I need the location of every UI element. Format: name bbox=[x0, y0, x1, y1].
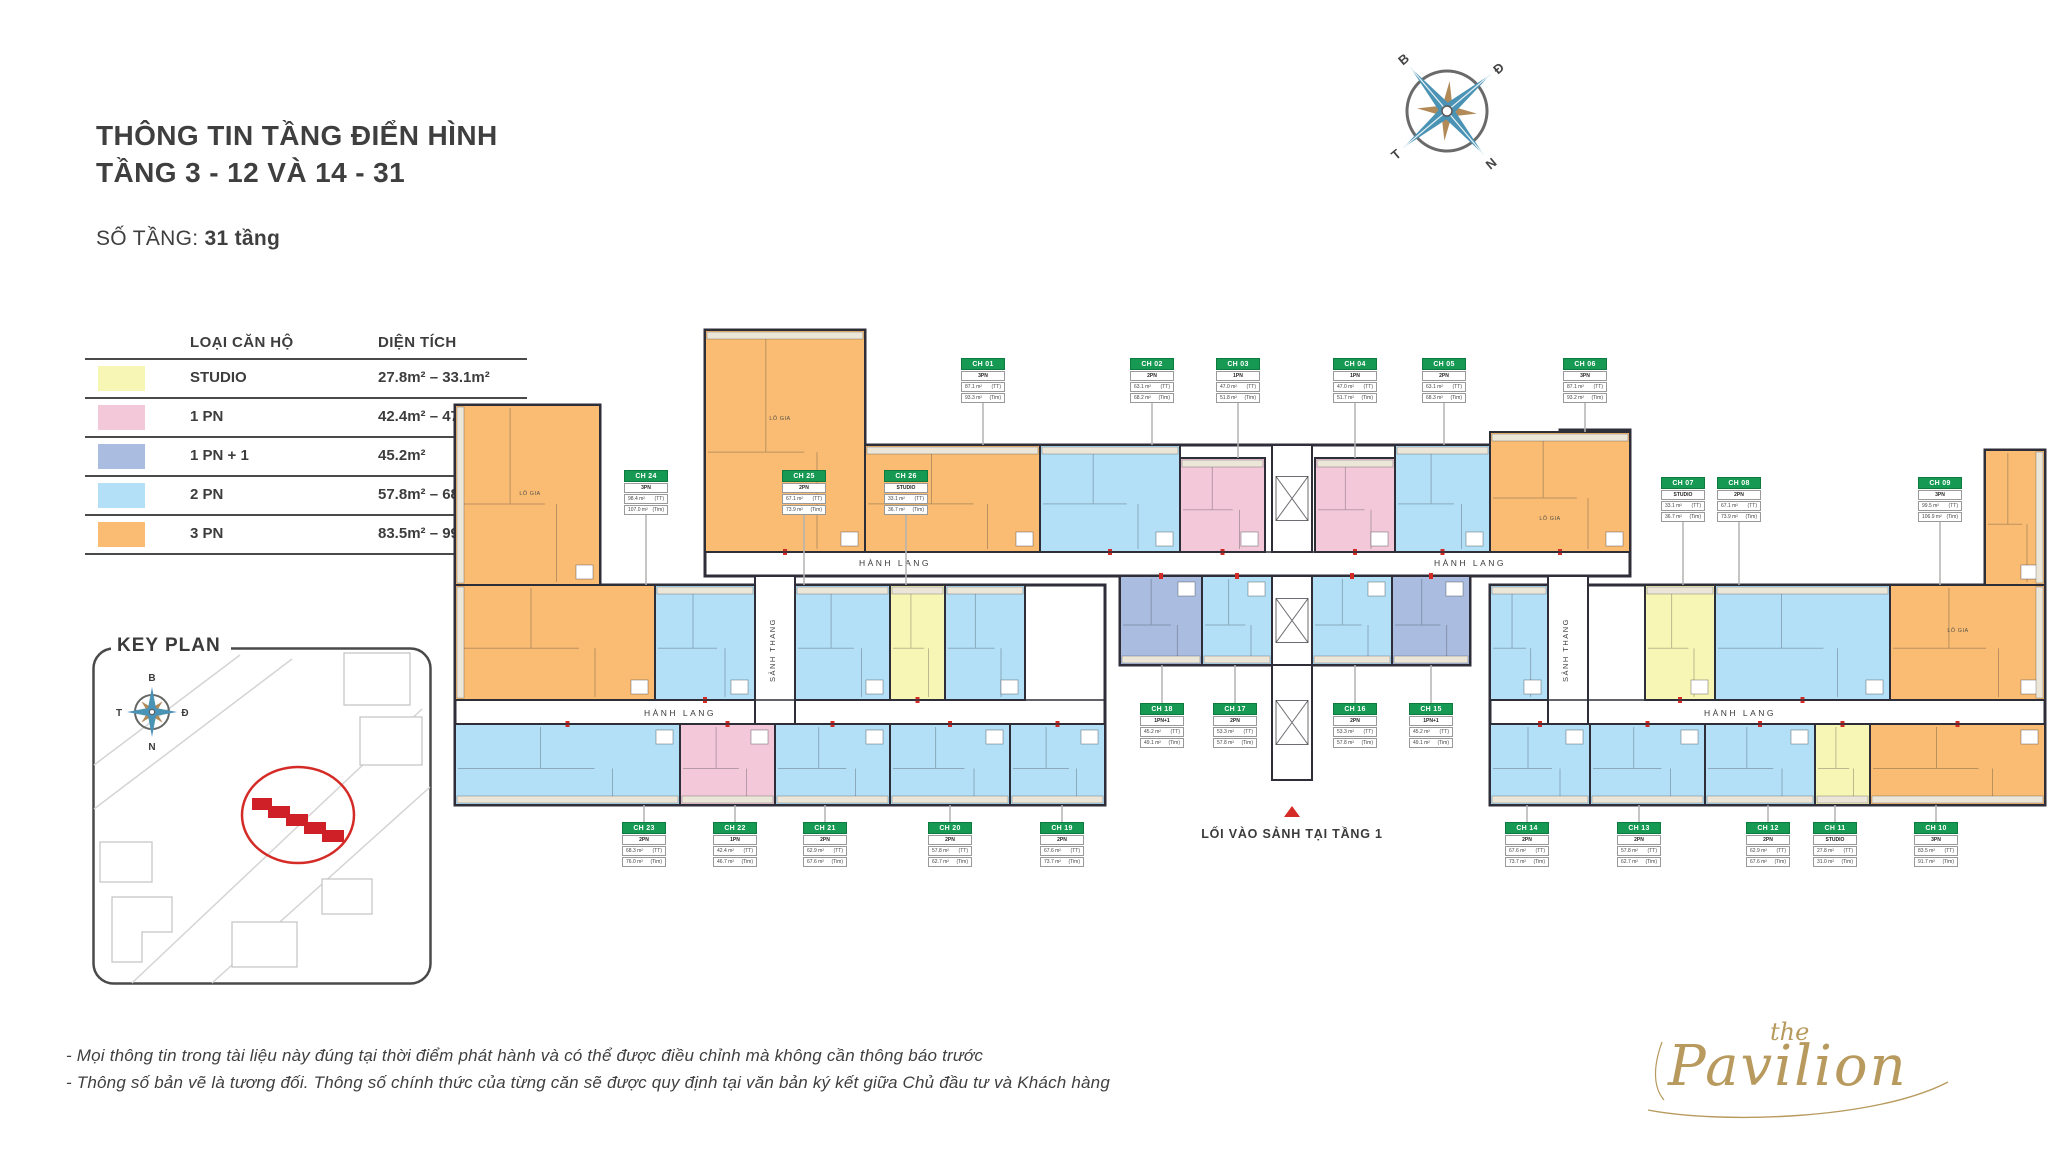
unit-id-label: CH 13 bbox=[1617, 822, 1661, 834]
plan-unit-ch-08 bbox=[1715, 585, 1890, 700]
unit-area-tt: 42.4 m²(TT) bbox=[713, 846, 757, 856]
unit-id-label: CH 10 bbox=[1914, 822, 1958, 834]
unit-area-tim: 67.6 m²(Tim) bbox=[803, 857, 847, 867]
unit-area-tim: 62.7 m²(Tim) bbox=[1617, 857, 1661, 867]
unit-card-ch-03: CH 031PN47.0 m²(TT)51.8 m²(Tim) bbox=[1216, 358, 1260, 403]
unit-type-label: 1PN bbox=[713, 835, 757, 845]
unit-card-ch-14: CH 142PN67.6 m²(TT)73.7 m²(Tim) bbox=[1505, 822, 1549, 867]
unit-area-tt: 67.1 m²(TT) bbox=[1717, 501, 1761, 511]
unit-area-tim: 62.7 m²(Tim) bbox=[928, 857, 972, 867]
unit-entry-mark bbox=[1159, 573, 1163, 579]
unit-area-tt: 83.5 m²(TT) bbox=[1914, 846, 1958, 856]
compass-e-label: Đ bbox=[1490, 60, 1507, 78]
unit-area-tim: 73.9 m²(Tim) bbox=[1717, 512, 1761, 522]
unit-entry-mark bbox=[1350, 573, 1354, 579]
unit-area-tim: 57.8 m²(Tim) bbox=[1333, 738, 1377, 748]
unit-card-ch-09: CH 093PN99.5 m²(TT)106.9 m²(Tim) bbox=[1918, 477, 1962, 522]
unit-area-tt: 45.2 m²(TT) bbox=[1140, 727, 1184, 737]
unit-area-tt: 57.8 m²(TT) bbox=[928, 846, 972, 856]
unit-area-tt: 62.9 m²(TT) bbox=[803, 846, 847, 856]
corridor-label: HÀNH LANG bbox=[1704, 708, 1776, 718]
unit-type-label: 3PN bbox=[624, 483, 668, 493]
unit-card-ch-01: CH 013PN87.1 m²(TT)93.3 m²(Tim) bbox=[961, 358, 1005, 403]
unit-card-ch-16: CH 162PN53.3 m²(TT)57.8 m²(Tim) bbox=[1333, 703, 1377, 748]
unit-id-label: CH 15 bbox=[1409, 703, 1453, 715]
unit-type-label: 2PN bbox=[1130, 371, 1174, 381]
unit-card-ch-05: CH 052PN63.1 m²(TT)68.3 m²(Tim) bbox=[1422, 358, 1466, 403]
unit-area-tim: 73.9 m²(Tim) bbox=[782, 505, 826, 515]
corridor-label: HÀNH LANG bbox=[859, 558, 931, 568]
unit-card-ch-13: CH 132PN57.8 m²(TT)62.7 m²(Tim) bbox=[1617, 822, 1661, 867]
unit-area-tim: 31.0 m²(Tim) bbox=[1813, 857, 1857, 867]
corridor-label: HÀNH LANG bbox=[1434, 558, 1506, 568]
unit-area-tim: 51.8 m²(Tim) bbox=[1216, 393, 1260, 403]
unit-id-label: CH 02 bbox=[1130, 358, 1174, 370]
unit-card-ch-20: CH 202PN57.8 m²(TT)62.7 m²(Tim) bbox=[928, 822, 972, 867]
unit-id-label: CH 16 bbox=[1333, 703, 1377, 715]
compass-rose-icon: B Đ N T bbox=[1372, 36, 1522, 186]
unit-card-ch-18: CH 181PN+145.2 m²(TT)49.1 m²(Tim) bbox=[1140, 703, 1184, 748]
unit-id-label: CH 23 bbox=[622, 822, 666, 834]
plan-unit-ch-11 bbox=[1815, 724, 1870, 805]
compass-w-label: T bbox=[1388, 146, 1404, 163]
unit-type-label: 2PN bbox=[1505, 835, 1549, 845]
keyplan-title: KEY PLAN bbox=[111, 635, 231, 657]
unit-area-tim: 46.7 m²(Tim) bbox=[713, 857, 757, 867]
unit-area-tt: 98.4 m²(TT) bbox=[624, 494, 668, 504]
unit-id-label: CH 12 bbox=[1746, 822, 1790, 834]
unit-card-ch-25: CH 252PN67.1 m²(TT)73.9 m²(Tim) bbox=[782, 470, 826, 515]
unit-area-tt: 33.1 m²(TT) bbox=[1661, 501, 1705, 511]
unit-type-label: 2PN bbox=[622, 835, 666, 845]
unit-card-ch-02: CH 022PN63.1 m²(TT)68.2 m²(Tim) bbox=[1130, 358, 1174, 403]
compass-s-label: N bbox=[1483, 155, 1500, 173]
entry-arrow-icon bbox=[1284, 806, 1300, 817]
keyplan-compass-n: B bbox=[148, 673, 155, 684]
unit-id-label: CH 17 bbox=[1213, 703, 1257, 715]
unit-card-ch-07: CH 07STUDIO33.1 m²(TT)36.7 m²(Tim) bbox=[1661, 477, 1705, 522]
unit-id-label: CH 25 bbox=[782, 470, 826, 482]
unit-type-label: 2PN bbox=[1617, 835, 1661, 845]
unit-type-label: STUDIO bbox=[1661, 490, 1705, 500]
balcony-label: LÔ GIA bbox=[1539, 515, 1560, 522]
unit-type-label: 3PN bbox=[1918, 490, 1962, 500]
unit-area-tim: 51.7 m²(Tim) bbox=[1333, 393, 1377, 403]
unit-area-tim: 36.7 m²(Tim) bbox=[884, 505, 928, 515]
unit-id-label: CH 09 bbox=[1918, 477, 1962, 489]
unit-id-label: CH 01 bbox=[961, 358, 1005, 370]
unit-area-tim: 106.9 m²(Tim) bbox=[1918, 512, 1962, 522]
unit-area-tt: 87.1 m²(TT) bbox=[1563, 382, 1607, 392]
unit-type-label: 3PN bbox=[1563, 371, 1607, 381]
unit-area-tim: 91.7 m²(Tim) bbox=[1914, 857, 1958, 867]
unit-id-label: CH 19 bbox=[1040, 822, 1084, 834]
unit-area-tt: 62.9 m²(TT) bbox=[1746, 846, 1790, 856]
unit-area-tim: 73.7 m²(Tim) bbox=[1040, 857, 1084, 867]
unit-id-label: CH 04 bbox=[1333, 358, 1377, 370]
unit-area-tt: 45.2 m²(TT) bbox=[1409, 727, 1453, 737]
unit-type-label: 2PN bbox=[1213, 716, 1257, 726]
keyplan-compass-e: Đ bbox=[181, 708, 188, 719]
unit-area-tt: 47.0 m²(TT) bbox=[1333, 382, 1377, 392]
balcony-label: LÔ GIA bbox=[519, 490, 540, 497]
unit-area-tim: 107.0 m²(Tim) bbox=[624, 505, 668, 515]
unit-card-ch-15: CH 151PN+145.2 m²(TT)49.1 m²(Tim) bbox=[1409, 703, 1453, 748]
balcony-label: LÔ GIA bbox=[1947, 627, 1968, 634]
unit-area-tt: 87.1 m²(TT) bbox=[961, 382, 1005, 392]
keyplan-compass-s: N bbox=[148, 742, 155, 753]
unit-entry-mark bbox=[1235, 573, 1239, 579]
unit-id-label: CH 11 bbox=[1813, 822, 1857, 834]
unit-id-label: CH 06 bbox=[1563, 358, 1607, 370]
stair-label: SẢNH THANG bbox=[1561, 618, 1570, 682]
unit-type-label: 2PN bbox=[1422, 371, 1466, 381]
plan-unit-ch-01 bbox=[705, 330, 865, 552]
unit-area-tt: 67.1 m²(TT) bbox=[782, 494, 826, 504]
unit-area-tim: 76.0 m²(Tim) bbox=[622, 857, 666, 867]
unit-area-tim: 49.1 m²(Tim) bbox=[1409, 738, 1453, 748]
unit-type-label: 2PN bbox=[1717, 490, 1761, 500]
unit-area-tt: 63.1 m²(TT) bbox=[1130, 382, 1174, 392]
unit-area-tim: 57.8 m²(Tim) bbox=[1213, 738, 1257, 748]
unit-type-label: 1PN+1 bbox=[1140, 716, 1184, 726]
plan-unit-ch-10 bbox=[1870, 724, 2045, 805]
unit-area-tt: 67.6 m²(TT) bbox=[1040, 846, 1084, 856]
unit-area-tt: 63.1 m²(TT) bbox=[1422, 382, 1466, 392]
unit-entry-mark bbox=[1429, 573, 1433, 579]
unit-type-label: 2PN bbox=[782, 483, 826, 493]
unit-card-ch-23: CH 232PN68.3 m²(TT)76.0 m²(Tim) bbox=[622, 822, 666, 867]
unit-type-label: 2PN bbox=[803, 835, 847, 845]
unit-area-tim: 93.2 m²(Tim) bbox=[1563, 393, 1607, 403]
unit-type-label: STUDIO bbox=[884, 483, 928, 493]
unit-card-ch-11: CH 11STUDIO27.8 m²(TT)31.0 m²(Tim) bbox=[1813, 822, 1857, 867]
unit-card-ch-04: CH 041PN47.0 m²(TT)51.7 m²(Tim) bbox=[1333, 358, 1377, 403]
corridor-label: HÀNH LANG bbox=[644, 708, 716, 718]
unit-card-ch-19: CH 192PN67.6 m²(TT)73.7 m²(Tim) bbox=[1040, 822, 1084, 867]
unit-type-label: 1PN bbox=[1216, 371, 1260, 381]
unit-type-label: 2PN bbox=[1333, 716, 1377, 726]
unit-card-ch-22: CH 221PN42.4 m²(TT)46.7 m²(Tim) bbox=[713, 822, 757, 867]
unit-card-ch-21: CH 212PN62.9 m²(TT)67.6 m²(Tim) bbox=[803, 822, 847, 867]
unit-id-label: CH 07 bbox=[1661, 477, 1705, 489]
unit-area-tim: 49.1 m²(Tim) bbox=[1140, 738, 1184, 748]
compass-n-label: B bbox=[1395, 51, 1412, 69]
unit-area-tim: 67.6 m²(Tim) bbox=[1746, 857, 1790, 867]
unit-area-tt: 68.3 m²(TT) bbox=[622, 846, 666, 856]
unit-type-label: 3PN bbox=[1914, 835, 1958, 845]
unit-id-label: CH 24 bbox=[624, 470, 668, 482]
unit-card-ch-26: CH 26STUDIO33.1 m²(TT)36.7 m²(Tim) bbox=[884, 470, 928, 515]
unit-area-tt: 99.5 m²(TT) bbox=[1918, 501, 1962, 511]
stair-label: SẢNH THANG bbox=[768, 618, 777, 682]
unit-id-label: CH 03 bbox=[1216, 358, 1260, 370]
unit-id-label: CH 26 bbox=[884, 470, 928, 482]
unit-card-ch-24: CH 243PN98.4 m²(TT)107.0 m²(Tim) bbox=[624, 470, 668, 515]
unit-id-label: CH 22 bbox=[713, 822, 757, 834]
unit-card-ch-06: CH 063PN87.1 m²(TT)93.2 m²(Tim) bbox=[1563, 358, 1607, 403]
unit-area-tt: 33.1 m²(TT) bbox=[884, 494, 928, 504]
unit-type-label: 2PN bbox=[928, 835, 972, 845]
keyplan-map: B Đ N T bbox=[92, 647, 432, 985]
unit-area-tim: 73.7 m²(Tim) bbox=[1505, 857, 1549, 867]
unit-area-tt: 57.8 m²(TT) bbox=[1617, 846, 1661, 856]
unit-type-label: STUDIO bbox=[1813, 835, 1857, 845]
unit-card-ch-08: CH 082PN67.1 m²(TT)73.9 m²(Tim) bbox=[1717, 477, 1761, 522]
unit-id-label: CH 14 bbox=[1505, 822, 1549, 834]
unit-area-tt: 53.3 m²(TT) bbox=[1333, 727, 1377, 737]
keyplan-compass-w: T bbox=[116, 708, 122, 719]
entry-label: LỐI VÀO SẢNH TẠI TẦNG 1 bbox=[1201, 826, 1383, 841]
unit-id-label: CH 08 bbox=[1717, 477, 1761, 489]
plan-unit-ch-23 bbox=[455, 724, 680, 805]
unit-area-tim: 93.3 m²(Tim) bbox=[961, 393, 1005, 403]
unit-id-label: CH 20 bbox=[928, 822, 972, 834]
unit-card-ch-10: CH 103PN83.5 m²(TT)91.7 m²(Tim) bbox=[1914, 822, 1958, 867]
unit-type-label: 3PN bbox=[961, 371, 1005, 381]
plan-unit-ch-24 bbox=[455, 585, 655, 700]
balcony-label: LÔ GIA bbox=[769, 415, 790, 422]
unit-card-ch-12: CH 122PN62.9 m²(TT)67.6 m²(Tim) bbox=[1746, 822, 1790, 867]
unit-area-tt: 67.6 m²(TT) bbox=[1505, 846, 1549, 856]
unit-type-label: 2PN bbox=[1746, 835, 1790, 845]
unit-area-tim: 36.7 m²(Tim) bbox=[1661, 512, 1705, 522]
unit-type-label: 2PN bbox=[1040, 835, 1084, 845]
brochure-page: THÔNG TIN TẦNG ĐIỂN HÌNH TẦNG 3 - 12 VÀ … bbox=[0, 0, 2048, 1152]
unit-type-label: 1PN bbox=[1333, 371, 1377, 381]
unit-area-tt: 47.0 m²(TT) bbox=[1216, 382, 1260, 392]
unit-id-label: CH 18 bbox=[1140, 703, 1184, 715]
unit-id-label: CH 21 bbox=[803, 822, 847, 834]
unit-area-tim: 68.2 m²(Tim) bbox=[1130, 393, 1174, 403]
unit-id-label: CH 05 bbox=[1422, 358, 1466, 370]
unit-area-tim: 68.3 m²(Tim) bbox=[1422, 393, 1466, 403]
unit-area-tt: 53.3 m²(TT) bbox=[1213, 727, 1257, 737]
plan-unit-ch-26 bbox=[890, 585, 945, 700]
unit-card-ch-17: CH 172PN53.3 m²(TT)57.8 m²(Tim) bbox=[1213, 703, 1257, 748]
unit-area-tt: 27.8 m²(TT) bbox=[1813, 846, 1857, 856]
unit-type-label: 1PN+1 bbox=[1409, 716, 1453, 726]
